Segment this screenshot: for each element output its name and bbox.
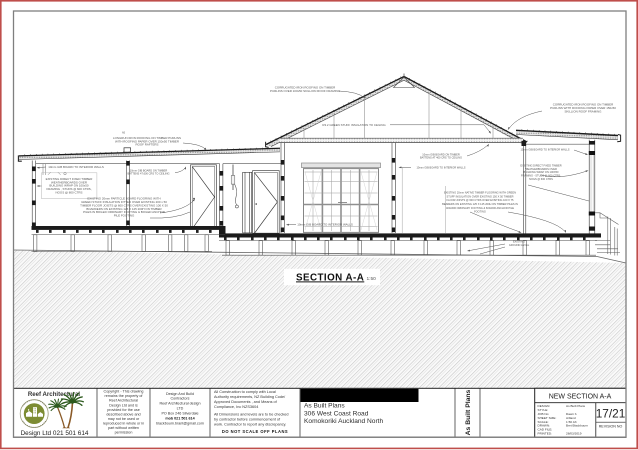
svg-text:Design Ltd 021 501 614: Design Ltd 021 501 614 [21, 430, 89, 437]
svg-text:10mm GIB BOARD ON TIMBERBATTEN: 10mm GIB BOARD ON TIMBERBATTENS 47,600 C… [128, 168, 170, 175]
svg-text:17/21: 17/21 [596, 407, 626, 421]
svg-text:As Built Plans: As Built Plans [566, 404, 586, 408]
svg-text:All Dimensions and levels are: All Dimensions and levels are to be chec… [214, 412, 289, 426]
svg-text:10mm GIB BOARD ON TIMBERBATTEN: 10mm GIB BOARD ON TIMBERBATTENS AT 400 C… [420, 153, 462, 160]
svg-text:R3.2 GREEN STUFF INSULATION TO: R3.2 GREEN STUFF INSULATION TO CEILING [322, 123, 386, 127]
svg-text:As Built Plans: As Built Plans [304, 403, 345, 410]
svg-text:PRINTED:: PRINTED: [538, 432, 553, 436]
svg-text:10mm GIB BOARD TO INTERIOR WAL: 10mm GIB BOARD TO INTERIOR WALLS [520, 147, 569, 151]
svg-text:Bret Blackbourn: Bret Blackbourn [566, 424, 588, 428]
svg-text:Copyright - This drawingremain: Copyright - This drawingremains the prop… [103, 390, 144, 435]
svg-text:28/03/2019: 28/03/2019 [566, 432, 582, 436]
svg-text:CORRUGATED IRON ROOFING ON TIM: CORRUGATED IRON ROOFING ON TIMBERPURLINS… [270, 86, 341, 93]
svg-text:NEW SECTION A-A: NEW SECTION A-A [549, 393, 612, 400]
svg-text:SECTION A-A: SECTION A-A [296, 272, 364, 283]
svg-text:DO NOT SCALE OFF PLANS: DO NOT SCALE OFF PLANS [222, 429, 288, 434]
svg-text:1:50: 1:50 [367, 276, 377, 282]
svg-text:10mm GIB BOARD TO INTERIOR WAL: 10mm GIB BOARD TO INTERIOR WALLS [48, 165, 104, 169]
svg-text:10mm GIB BOARD TO INTERIOR WAL: 10mm GIB BOARD TO INTERIOR WALLS [416, 165, 465, 169]
svg-text:10mm GIB BOARD TO INTERIOR WAL: 10mm GIB BOARD TO INTERIOR WALLS [297, 223, 353, 227]
svg-text:mob 021 501 614: mob 021 501 614 [165, 417, 195, 421]
svg-text:306 West Coast Road: 306 West Coast Road [304, 410, 369, 417]
svg-text:Komokoriki Auckland North: Komokoriki Auckland North [304, 418, 383, 425]
svg-text:As Built Plans: As Built Plans [465, 389, 472, 435]
svg-text:REVISION NO: REVISION NO [599, 425, 623, 429]
svg-text:blackboum.brant@gmail.com: blackboum.brant@gmail.com [156, 421, 204, 425]
